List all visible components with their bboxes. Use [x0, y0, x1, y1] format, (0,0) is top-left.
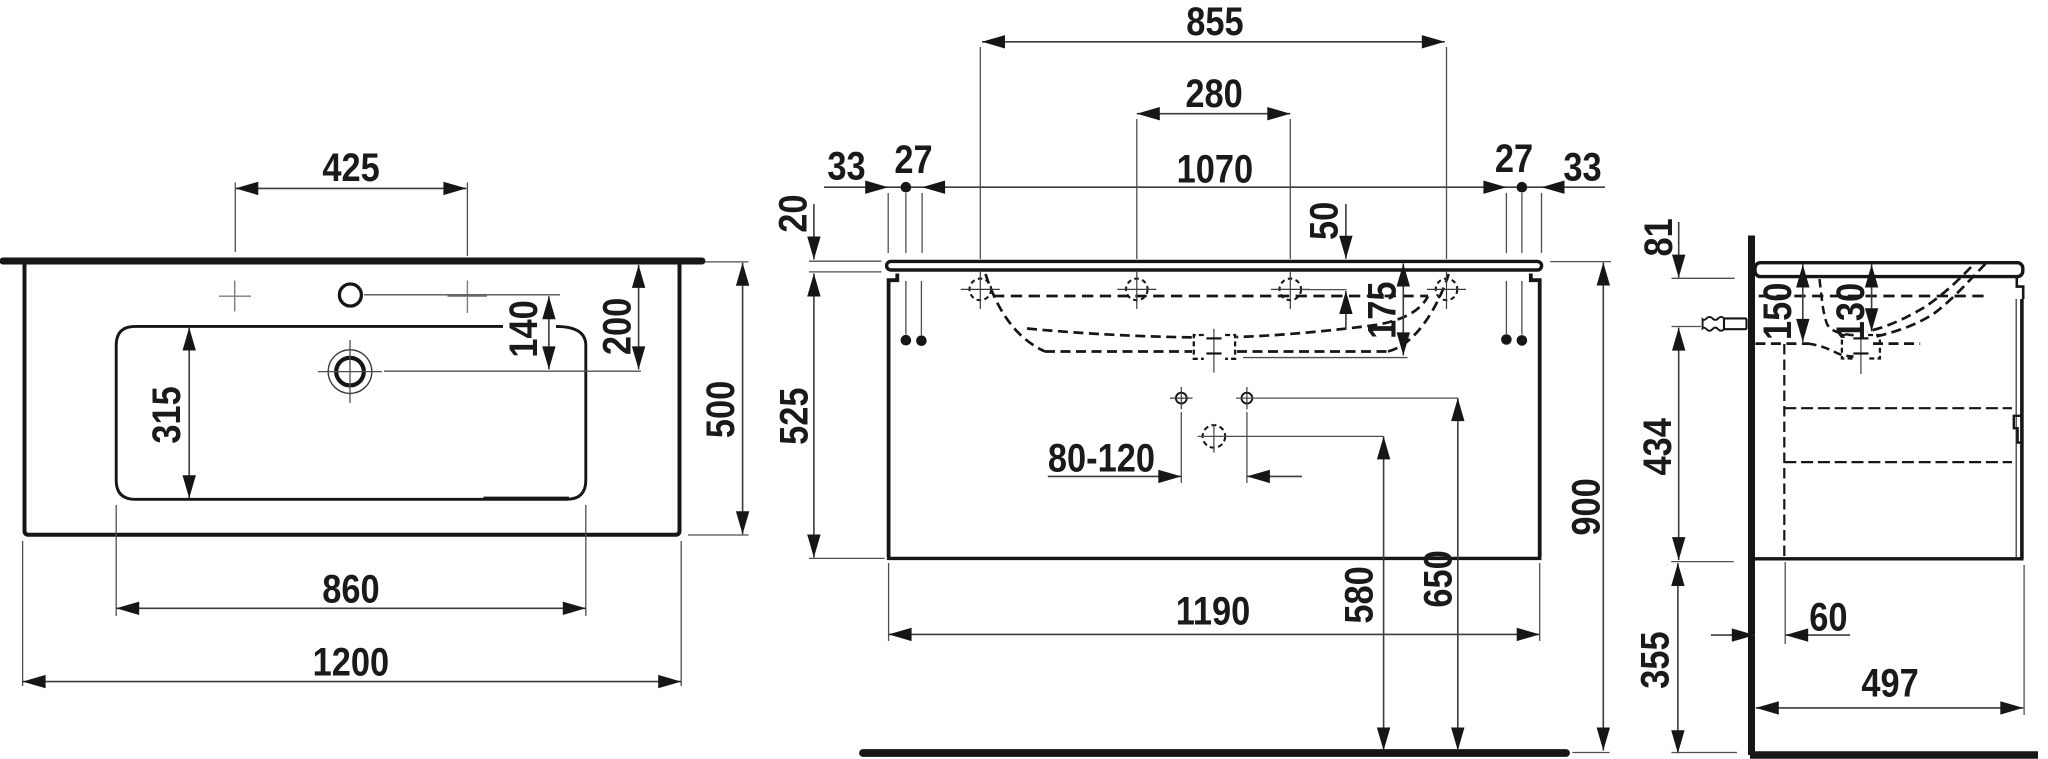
svg-text:80-120: 80-120: [1048, 435, 1155, 480]
svg-text:434: 434: [1634, 418, 1679, 476]
svg-text:50: 50: [1301, 202, 1346, 240]
svg-text:900: 900: [1563, 478, 1608, 535]
svg-text:27: 27: [894, 137, 932, 182]
svg-text:860: 860: [322, 566, 379, 611]
svg-text:81: 81: [1636, 218, 1681, 256]
svg-text:315: 315: [144, 386, 189, 443]
svg-text:580: 580: [1336, 566, 1381, 623]
svg-text:140: 140: [501, 300, 546, 357]
svg-text:150: 150: [1755, 283, 1800, 340]
svg-text:497: 497: [1861, 660, 1918, 705]
svg-text:1200: 1200: [313, 639, 390, 684]
svg-text:280: 280: [1185, 71, 1242, 116]
svg-text:130: 130: [1827, 283, 1872, 340]
svg-text:425: 425: [322, 145, 379, 190]
svg-text:525: 525: [771, 388, 816, 445]
svg-text:855: 855: [1186, 0, 1243, 44]
svg-text:355: 355: [1632, 631, 1677, 688]
svg-text:20: 20: [770, 194, 815, 232]
svg-text:650: 650: [1415, 550, 1460, 607]
svg-text:175: 175: [1359, 282, 1404, 339]
svg-text:200: 200: [594, 298, 639, 355]
svg-text:27: 27: [1495, 136, 1533, 181]
svg-text:500: 500: [698, 381, 743, 438]
svg-text:1190: 1190: [1176, 588, 1251, 633]
svg-text:33: 33: [827, 143, 865, 188]
svg-text:33: 33: [1563, 144, 1601, 189]
svg-text:1070: 1070: [1177, 146, 1254, 191]
svg-text:60: 60: [1809, 594, 1847, 639]
